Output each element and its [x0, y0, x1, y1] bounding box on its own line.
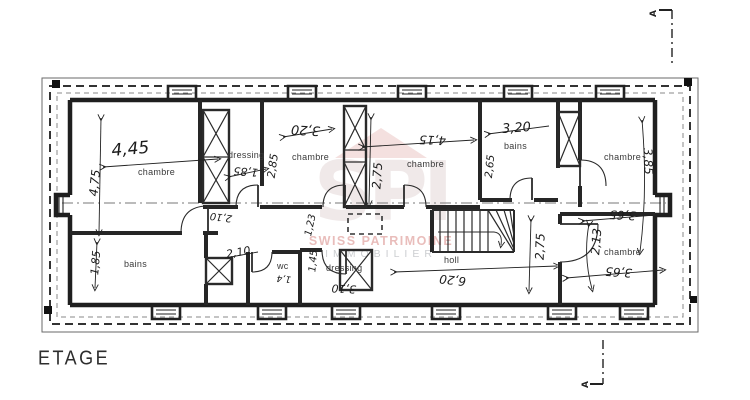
dim-chambre-br-depth: 2,13	[588, 228, 604, 256]
room-label-chambre-br: chambre	[604, 247, 641, 257]
dim-wc-width: 1,4	[276, 272, 291, 283]
room-label-chambre-tl: chambre	[138, 167, 175, 177]
dim-chambre-tr-width: 3,65	[609, 207, 636, 222]
room-label-chambre-tr: chambre	[604, 152, 641, 162]
dim-hall-length: 6,20	[438, 272, 466, 289]
dim-chambre-2-width: 3,20	[291, 121, 321, 137]
section-marker-top: A	[649, 10, 672, 66]
dim-chambre-tl-width: 4,45	[111, 138, 150, 161]
room-label-wc: wc	[276, 261, 289, 271]
staircase	[432, 210, 514, 252]
drawing-title: ETAGE	[38, 346, 110, 370]
dim-wc-b: 1,45	[307, 249, 320, 272]
dim-corridor-a: 2,10	[209, 210, 232, 224]
room-label-bains-bottom: bains	[124, 259, 147, 269]
room-label-chambre-center: chambre	[407, 159, 444, 169]
exterior-walls	[56, 100, 670, 305]
dim-chambre-tr-depth: 3,85	[641, 148, 656, 175]
dim-dressing-bottom: 3,10	[331, 281, 356, 295]
floor-plan-drawing: chambre dressing chambre chambre bains c…	[0, 0, 750, 400]
room-label-bains-top: bains	[504, 141, 527, 151]
dim-bains-top-depth: 2,65	[483, 154, 497, 179]
room-label-hall: holl	[444, 255, 459, 265]
skylight-hatch	[348, 214, 382, 234]
dim-hall-depth: 2,75	[533, 233, 548, 260]
dormer-windows	[59, 86, 664, 319]
dim-wc-a: 1,23	[303, 213, 318, 237]
section-letter-bottom: A	[581, 381, 591, 388]
dim-chambre-2-depth: 2,85	[265, 153, 281, 179]
section-marker-bottom: A	[581, 340, 603, 388]
room-label-dressing-bottom: dressing	[326, 263, 362, 273]
dim-bains-bottom-depth: 1,85	[88, 250, 103, 276]
dim-chambre-br-width: 3,65	[605, 264, 633, 280]
dim-chambre-tl-depth: 4,75	[86, 169, 103, 197]
dim-chambre-center-depth: 2,75	[369, 162, 385, 190]
section-letter-top: A	[649, 10, 659, 17]
interior-walls	[70, 100, 655, 305]
floor-plan-page: SPI SWISS PATRIMOINE IMMOBILIER	[0, 0, 750, 400]
dim-dressing-top: 1,85	[233, 164, 258, 179]
room-label-dressing-top: dressing	[228, 150, 264, 160]
dim-chambre-center-width: 4,15	[419, 133, 446, 148]
dim-bains-top-width: 3,20	[502, 120, 532, 137]
room-label-chambre-2: chambre	[292, 152, 329, 162]
